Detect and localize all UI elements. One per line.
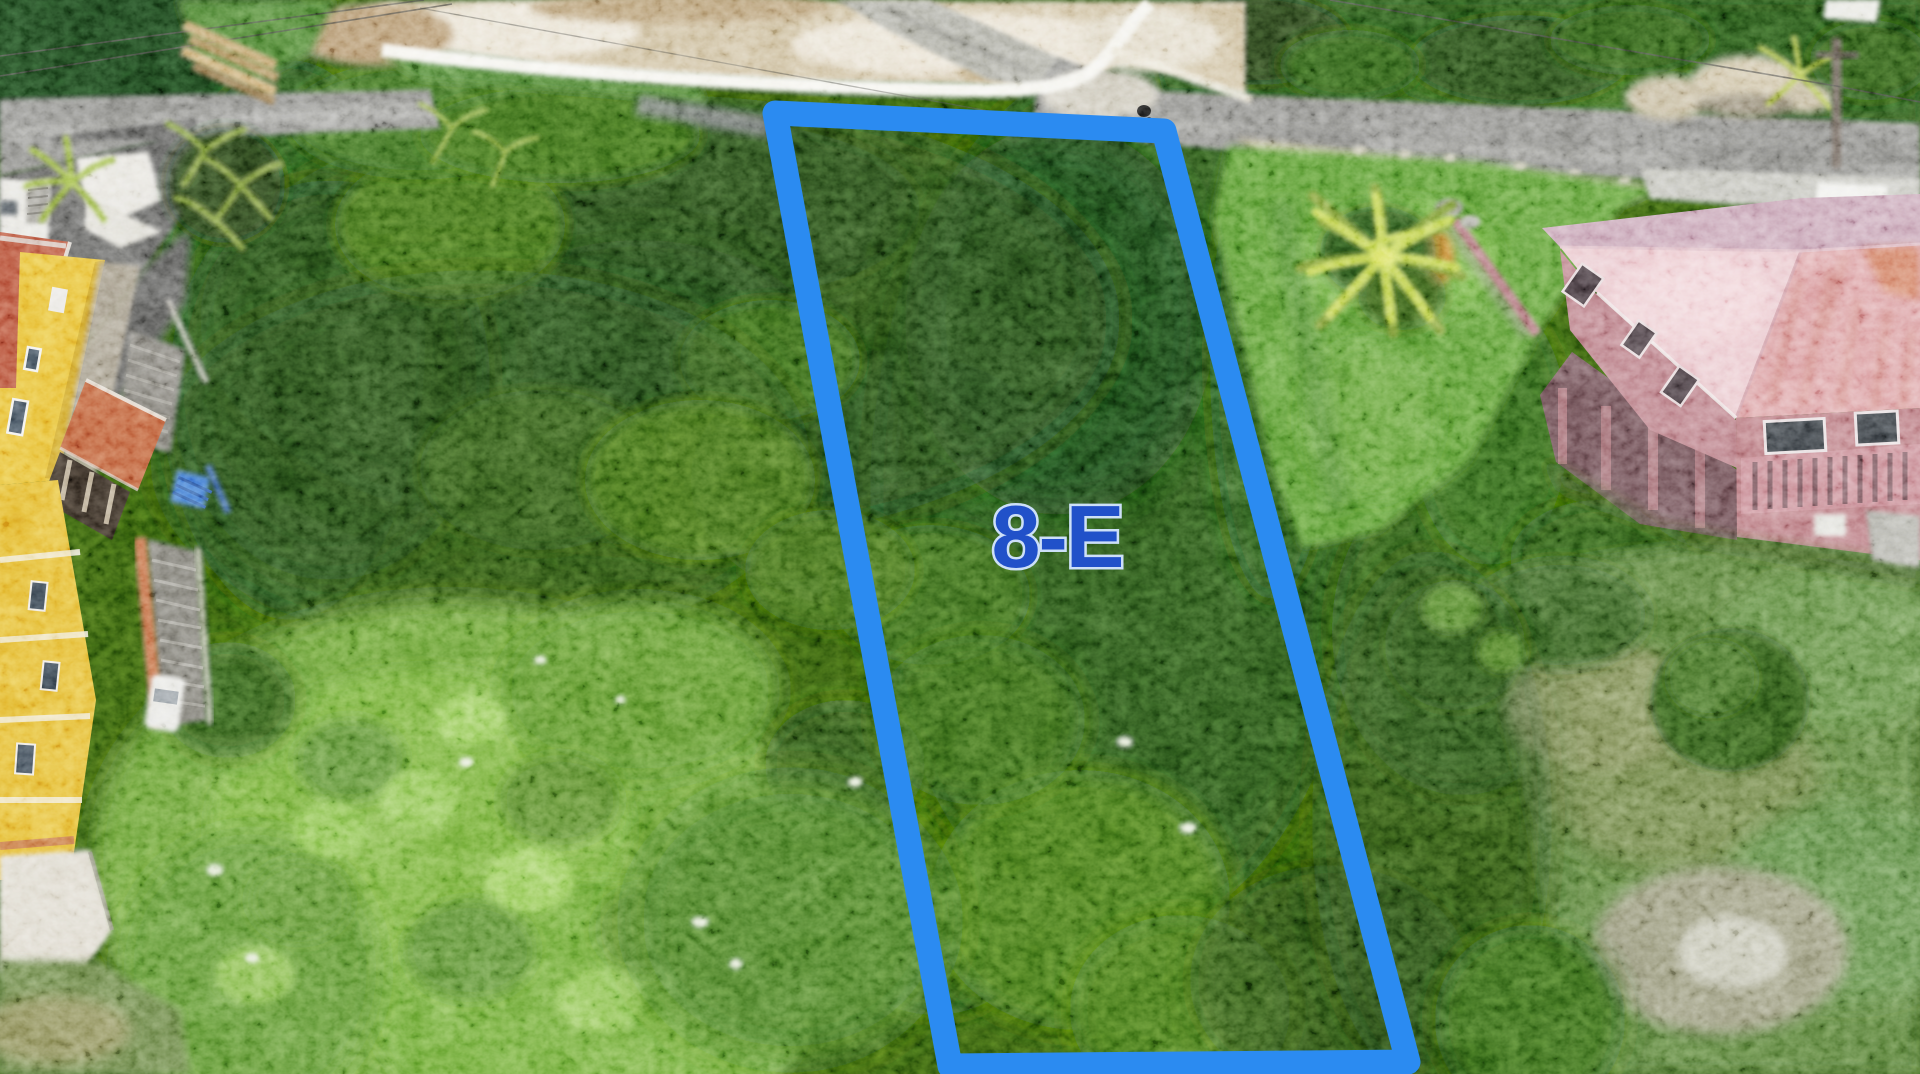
- svg-text:8-E: 8-E: [992, 487, 1123, 586]
